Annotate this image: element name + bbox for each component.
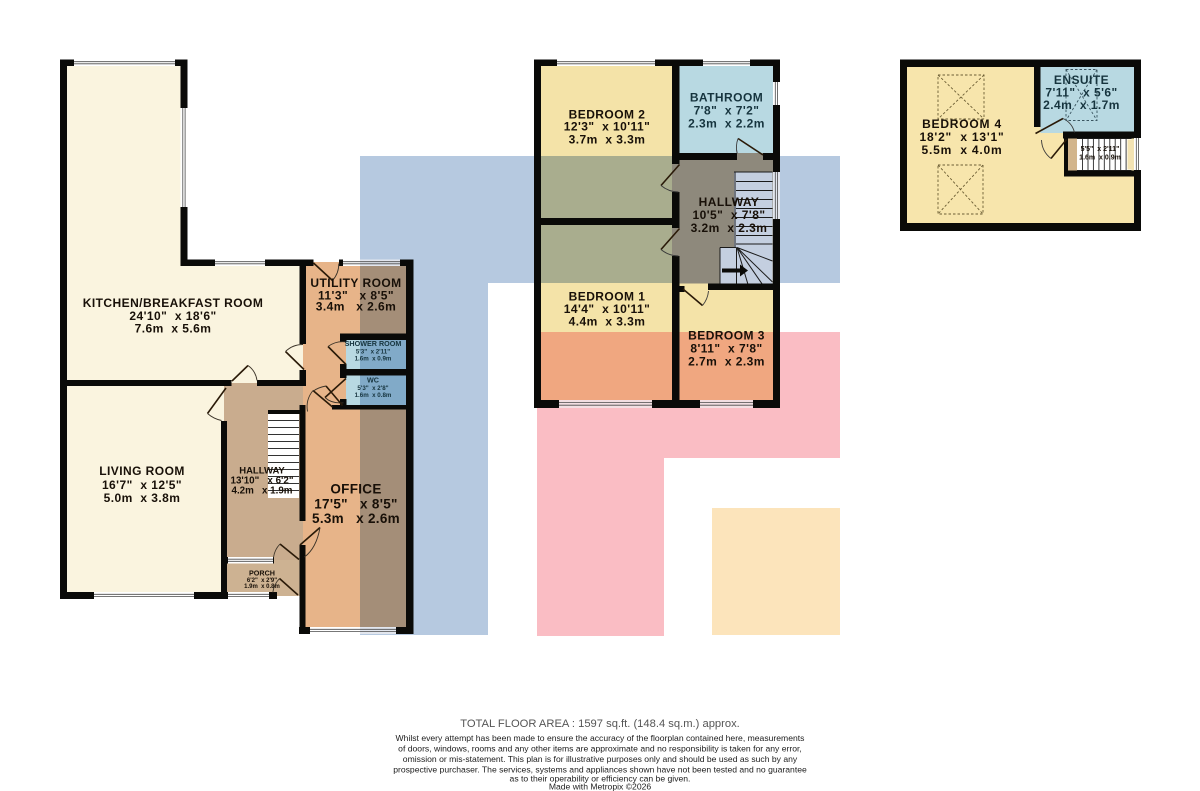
svg-text:OFFICE: OFFICE: [330, 482, 381, 497]
svg-text:17'5" x 8'5": 17'5" x 8'5": [314, 496, 397, 511]
svg-text:3.4m x 2.6m: 3.4m x 2.6m: [316, 299, 397, 313]
svg-text:LIVING ROOM: LIVING ROOM: [99, 464, 185, 478]
svg-text:HALLWAY: HALLWAY: [699, 195, 760, 209]
svg-text:18'2" x 13'1": 18'2" x 13'1": [919, 130, 1004, 144]
svg-text:1.6m x 0.8m: 1.6m x 0.8m: [355, 392, 392, 399]
svg-text:16'7" x 12'5": 16'7" x 12'5": [102, 478, 182, 492]
svg-text:4.2m x 1.9m: 4.2m x 1.9m: [232, 486, 293, 497]
svg-text:5.0m x 3.8m: 5.0m x 3.8m: [104, 491, 181, 505]
svg-text:TOTAL FLOOR AREA : 1597 sq.ft.: TOTAL FLOOR AREA : 1597 sq.ft. (148.4 sq…: [460, 718, 740, 730]
svg-text:Whilst every attempt has been: Whilst every attempt has been made to en…: [396, 733, 805, 743]
svg-text:5'3" x 2'11": 5'3" x 2'11": [356, 348, 390, 355]
svg-text:3.7m x 3.3m: 3.7m x 3.3m: [569, 133, 646, 147]
svg-text:5'3" x 2'8": 5'3" x 2'8": [357, 385, 388, 392]
svg-text:2.7m x 2.3m: 2.7m x 2.3m: [688, 355, 765, 369]
svg-text:5.5m x 4.0m: 5.5m x 4.0m: [922, 143, 1003, 157]
svg-text:1.9m x 0.8m: 1.9m x 0.8m: [244, 584, 280, 590]
svg-text:BATHROOM: BATHROOM: [690, 91, 763, 105]
svg-text:3.2m x 2.3m: 3.2m x 2.3m: [691, 221, 768, 235]
svg-text:4.4m x 3.3m: 4.4m x 3.3m: [569, 315, 646, 329]
svg-text:2.3m x 2.2m: 2.3m x 2.2m: [688, 117, 765, 131]
svg-text:SHOWER ROOM: SHOWER ROOM: [345, 339, 402, 348]
svg-text:7.6m x 5.6m: 7.6m x 5.6m: [135, 322, 212, 336]
svg-text:6'2" x 2'9": 6'2" x 2'9": [247, 578, 277, 584]
svg-text:5'5" x 2'11": 5'5" x 2'11": [1081, 146, 1120, 153]
svg-text:5.3m x 2.6m: 5.3m x 2.6m: [312, 511, 400, 526]
svg-text:KITCHEN/BREAKFAST ROOM: KITCHEN/BREAKFAST ROOM: [83, 296, 264, 310]
svg-text:PORCH: PORCH: [249, 569, 275, 578]
svg-text:BEDROOM 4: BEDROOM 4: [922, 117, 1002, 131]
svg-text:of doors, windows, rooms and a: of doors, windows, rooms and any other i…: [398, 744, 802, 754]
svg-text:WC: WC: [367, 376, 379, 385]
svg-text:1.6m x 0.9m: 1.6m x 0.9m: [355, 355, 392, 362]
svg-text:10'5" x 7'8": 10'5" x 7'8": [693, 208, 766, 222]
svg-text:omission or mis-statement. Thi: omission or mis-statement. This plan is …: [403, 754, 798, 764]
svg-text:7'8" x 7'2": 7'8" x 7'2": [694, 104, 760, 118]
svg-text:2.4m x 1.7m: 2.4m x 1.7m: [1043, 98, 1120, 112]
svg-text:Made with Metropix ©2026: Made with Metropix ©2026: [549, 782, 652, 791]
svg-text:8'11" x 7'8": 8'11" x 7'8": [690, 341, 762, 355]
svg-text:1.6m x 0.9m: 1.6m x 0.9m: [1079, 155, 1121, 162]
